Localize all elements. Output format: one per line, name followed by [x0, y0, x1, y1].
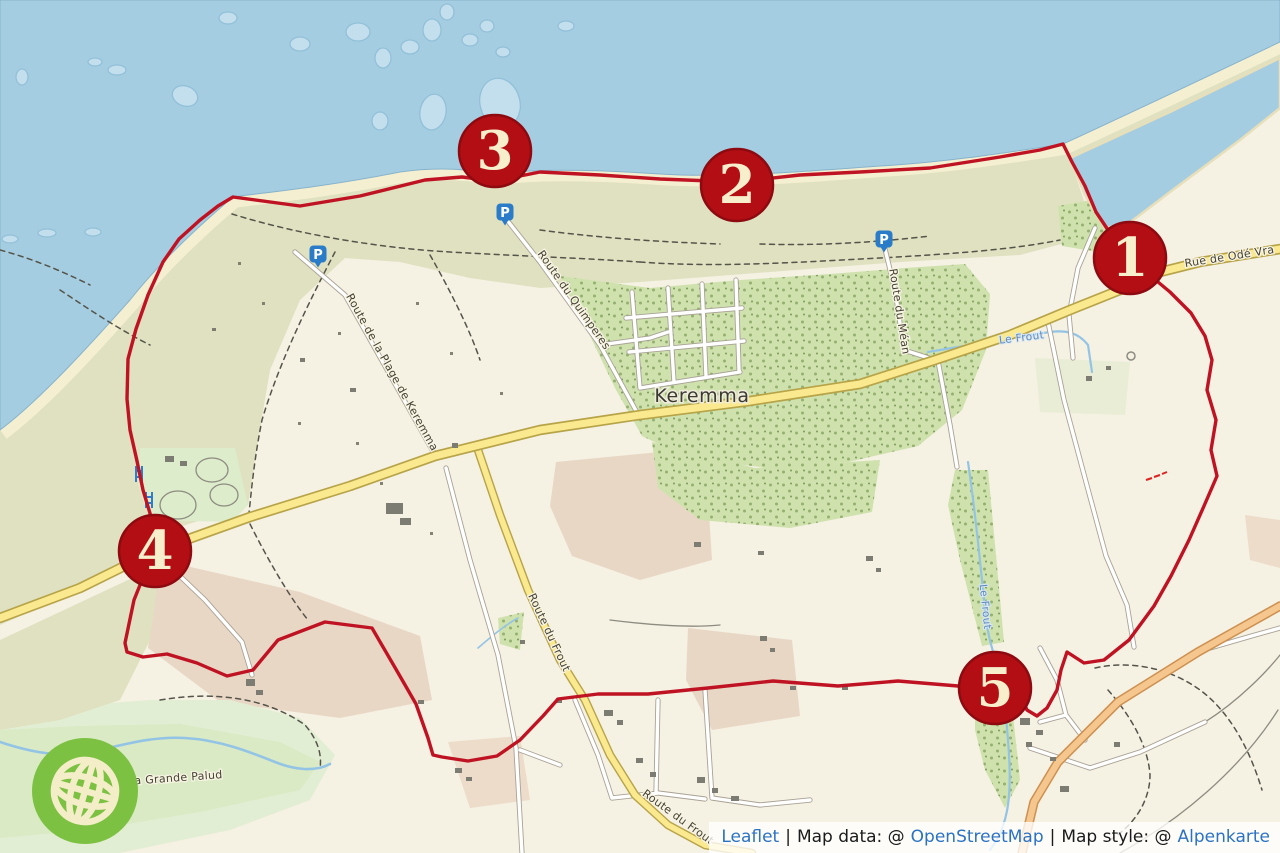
route-marker-1[interactable]: 1 — [1094, 222, 1166, 294]
alpenkarte-link[interactable]: Alpenkarte — [1178, 827, 1270, 847]
route-marker-4[interactable]: 4 — [119, 515, 191, 587]
svg-text:P: P — [313, 248, 323, 263]
svg-text:2: 2 — [719, 154, 756, 216]
svg-text:5: 5 — [977, 657, 1014, 719]
map-viewport: Rue de Odé Vra Route de la Plage de Kere… — [0, 0, 1280, 853]
map-data-label: Map data: @ — [797, 827, 905, 847]
route-marker-5[interactable]: 5 — [959, 652, 1031, 724]
svg-text:P: P — [879, 233, 889, 248]
route-marker-2[interactable]: 2 — [701, 149, 773, 221]
map-style-label: Map style: @ — [1061, 827, 1171, 847]
openstreetmap-link[interactable]: OpenStreetMap — [911, 827, 1044, 847]
leaflet-link[interactable]: Leaflet — [721, 827, 779, 847]
attribution-bar: Leaflet|Map data: @OpenStreetMap|Map sty… — [709, 822, 1280, 853]
place-label-keremma: Keremma — [654, 385, 749, 407]
svg-text:P: P — [500, 206, 510, 221]
map-canvas[interactable]: Rue de Odé Vra Route de la Plage de Kere… — [0, 0, 1280, 853]
svg-text:3: 3 — [477, 120, 514, 182]
route-marker-3[interactable]: 3 — [459, 115, 531, 187]
globe-logo-icon — [32, 738, 138, 844]
svg-text:4: 4 — [137, 520, 174, 582]
svg-text:1: 1 — [1112, 227, 1149, 289]
attribution-separator: | — [1050, 827, 1056, 847]
attribution-separator: | — [785, 827, 791, 847]
